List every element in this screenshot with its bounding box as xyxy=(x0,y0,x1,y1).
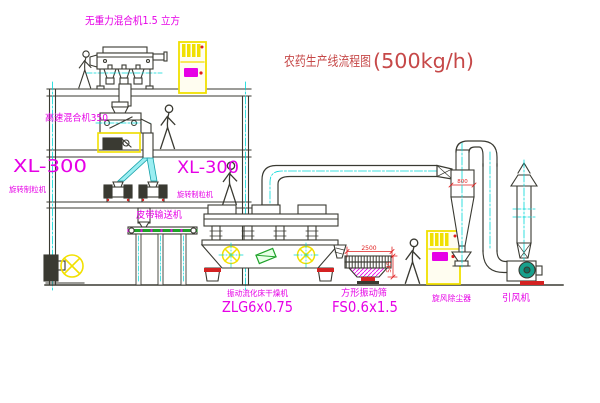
indicator-light-icon xyxy=(201,46,204,49)
pulley-icon xyxy=(191,228,196,233)
diagram-svg: 无重力混合机1.5 立方 农药生产线流程图 (500kg/h) 高速混合机350… xyxy=(0,0,600,403)
conveyor-legs xyxy=(136,234,186,285)
control-cabinet-top xyxy=(179,42,206,93)
belt-conveyor-label: 皮带输送机 xyxy=(136,209,182,221)
diagram-title-capacity: (500kg/h) xyxy=(373,49,474,73)
cabinet-display xyxy=(184,68,198,77)
dryer-discharge xyxy=(334,245,346,258)
y-chute xyxy=(118,158,157,181)
diagram-title: 农药生产线流程图 xyxy=(284,54,371,70)
dryer-label: 振动流化床干燥机 xyxy=(227,288,288,298)
person-figure xyxy=(405,239,419,283)
granulator-left xyxy=(104,182,132,202)
xl300-right-label: XL-300 xyxy=(177,158,239,178)
screen-length-dimension: 2500 xyxy=(361,245,376,252)
mixer-stand xyxy=(98,133,140,152)
cyclone-label: 旋风除尘器 xyxy=(432,293,471,303)
cyclone-width-dimension: 800 xyxy=(457,179,468,185)
cad-process-flow-diagram: 无重力混合机1.5 立方 农药生产线流程图 (500kg/h) 高速混合机350… xyxy=(0,0,600,403)
person-figure xyxy=(161,105,175,148)
duct-transition xyxy=(437,166,452,180)
granulator-right-label: 旋转制粒机 xyxy=(177,189,213,199)
dryer-model-label: ZLG6x0.75 xyxy=(222,298,293,316)
fan-label: 引风机 xyxy=(502,292,530,304)
dryer-connectors xyxy=(210,226,318,240)
discharge-hoppers xyxy=(104,65,144,84)
screen-height-dimension: 545 xyxy=(386,261,393,273)
cabinet-display xyxy=(432,252,448,261)
high-speed-mixer-label: 高速混合机350 xyxy=(45,112,108,124)
fluid-bed-dryer xyxy=(202,205,346,281)
xl300-left-label: XL-300 xyxy=(13,157,87,177)
granulator-right xyxy=(139,182,167,202)
screen-model-label: FS0.6x1.5 xyxy=(332,298,398,316)
indicator-light-icon xyxy=(199,71,202,74)
indicator-light-icon xyxy=(454,235,457,238)
exhaust-duct xyxy=(262,166,452,214)
blower xyxy=(44,255,84,283)
pulley-icon xyxy=(129,228,134,233)
gravity-mixer-label: 无重力混合机1.5 立方 xyxy=(85,14,180,27)
person-figure xyxy=(79,51,91,88)
gravity-free-mixer xyxy=(86,47,167,89)
induced-draft-fan xyxy=(507,261,544,285)
granulator-left-label: 旋转制粒机 xyxy=(9,184,46,194)
